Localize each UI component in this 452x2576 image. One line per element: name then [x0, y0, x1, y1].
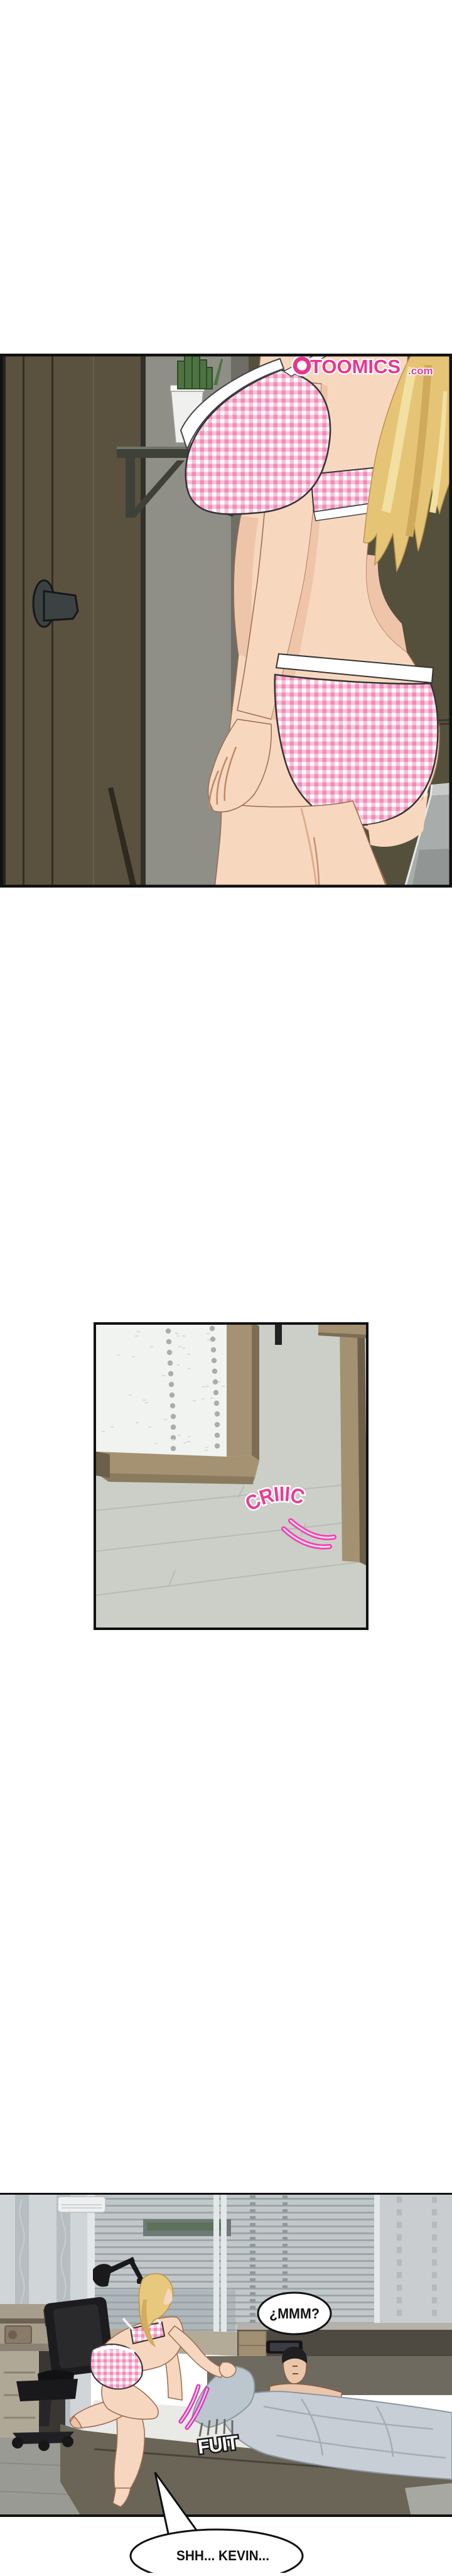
svg-text:.com: .com: [408, 365, 433, 377]
svg-text:SHH... KEVIN...: SHH... KEVIN...: [176, 2548, 269, 2563]
svg-text:TOOMICS: TOOMICS: [310, 356, 401, 378]
svg-text:¿MMM?: ¿MMM?: [269, 2305, 320, 2322]
